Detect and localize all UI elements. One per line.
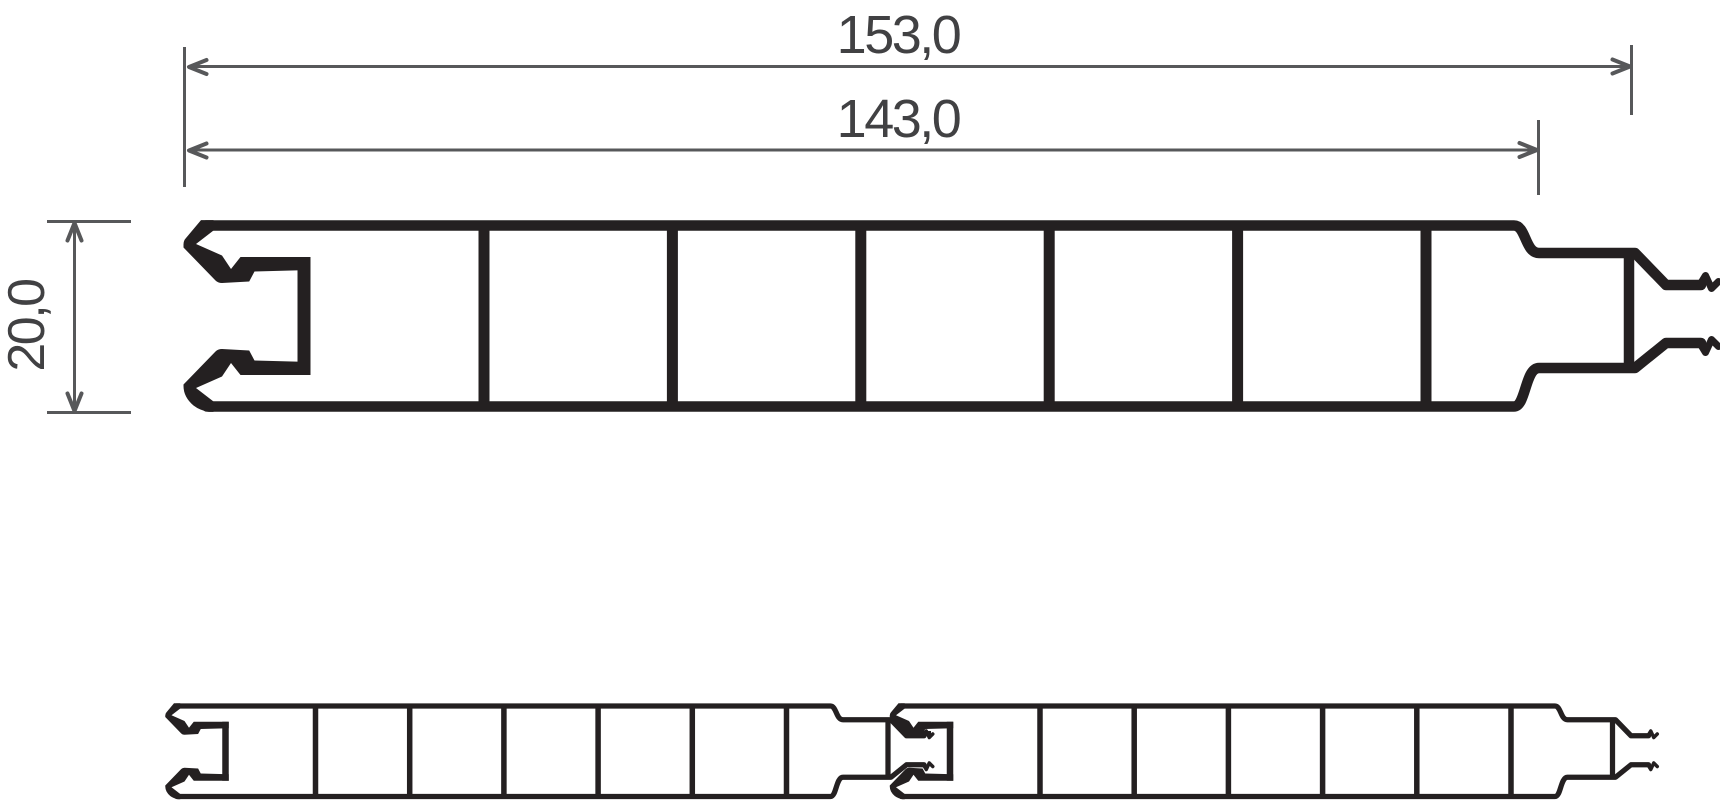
svg-text:20,0: 20,0 xyxy=(0,280,56,372)
svg-text:153,0: 153,0 xyxy=(837,5,960,65)
svg-text:143,0: 143,0 xyxy=(837,89,960,149)
